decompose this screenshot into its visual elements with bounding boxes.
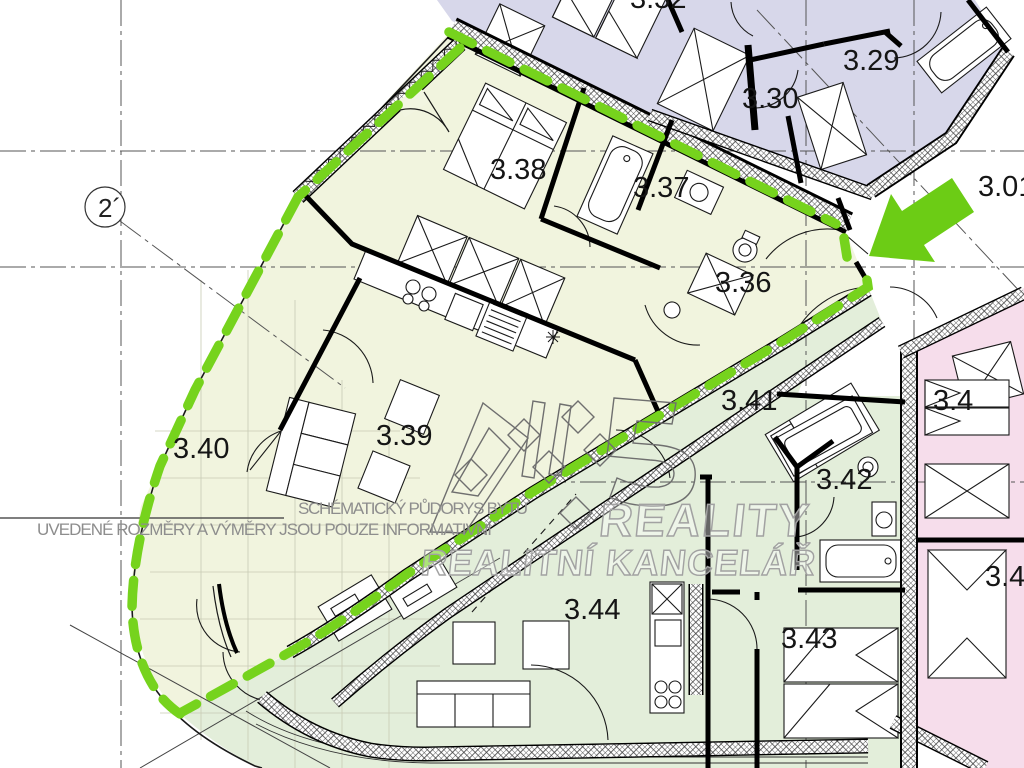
svg-text:3.43: 3.43 xyxy=(781,623,837,655)
svg-text:3.40: 3.40 xyxy=(173,433,229,465)
svg-text:3.36: 3.36 xyxy=(715,267,771,299)
svg-text:SCHÉMATICKÝ PŮDORYS BYTU: SCHÉMATICKÝ PŮDORYS BYTU xyxy=(298,499,528,518)
svg-text:REALITY: REALITY xyxy=(597,494,813,546)
svg-text:3.01: 3.01 xyxy=(978,171,1024,203)
svg-text:3.38: 3.38 xyxy=(490,154,546,186)
svg-text:3.37: 3.37 xyxy=(633,172,689,204)
svg-text:3.41: 3.41 xyxy=(721,385,777,417)
svg-text:2´: 2´ xyxy=(98,193,121,223)
svg-text:3.42: 3.42 xyxy=(816,464,872,496)
svg-text:3.30: 3.30 xyxy=(742,83,798,115)
svg-text:UVEDENÉ ROZMĚRY A VÝMĚRY JSOU: UVEDENÉ ROZMĚRY A VÝMĚRY JSOU POUZE INFO… xyxy=(37,520,492,539)
svg-text:REALITNÍ KANCELÁŘ: REALITNÍ KANCELÁŘ xyxy=(419,541,818,583)
svg-text:3.49: 3.49 xyxy=(985,561,1024,593)
svg-text:3.44: 3.44 xyxy=(564,594,620,626)
svg-text:3.32: 3.32 xyxy=(630,0,686,15)
svg-text:3.29: 3.29 xyxy=(843,45,899,77)
svg-text:3.39: 3.39 xyxy=(376,420,432,452)
svg-text:3.4: 3.4 xyxy=(933,385,973,417)
